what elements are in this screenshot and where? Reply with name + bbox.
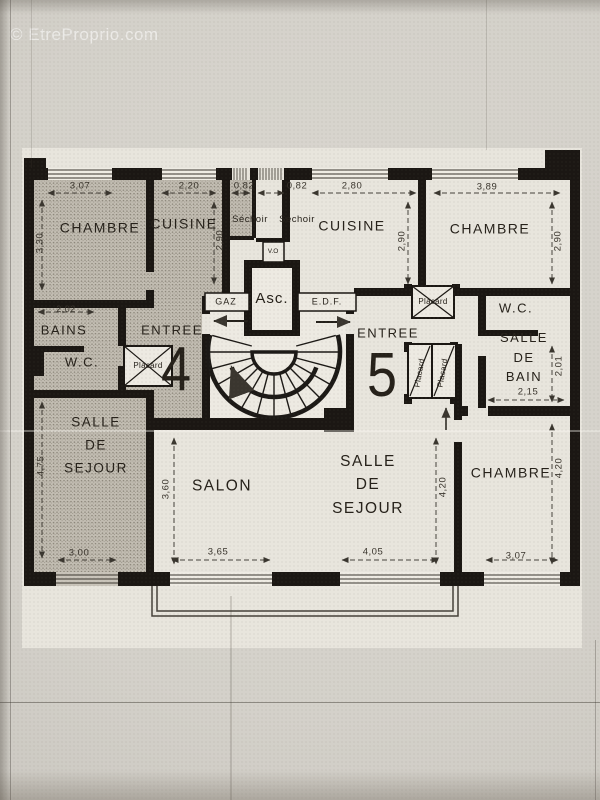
watermark: © EtreProprio.com <box>10 25 159 45</box>
room-label-cuisine-e: CUISINE <box>318 216 385 237</box>
dim-cuisine-e-h: 2,90 <box>397 231 408 252</box>
dim-top-6: 3,89 <box>477 182 498 193</box>
sheet-frame-left <box>10 0 11 800</box>
apartment-number-4: 4 <box>161 323 191 416</box>
dim-chambre-nw-h: 3,30 <box>35 233 46 254</box>
dim-chambre-ne-h: 2,90 <box>553 231 564 252</box>
dim-bains-w: 2,02 <box>56 304 76 314</box>
dim-top-5: 2,80 <box>342 181 363 192</box>
label-placard-ne: Placard <box>418 296 447 308</box>
photo-shading-bottom <box>0 770 600 800</box>
room-label-wc-w: W.C. <box>65 352 99 372</box>
sheet-frame-bottom <box>0 702 600 703</box>
dim-bottom-2: 3,65 <box>208 547 229 558</box>
dim-sejour-e-h: 4,20 <box>438 477 449 498</box>
fold-crease-top-left <box>31 0 32 168</box>
room-label-chambre-ne: CHAMBRE <box>450 219 531 240</box>
room-label-bains: BAINS <box>41 320 88 340</box>
room-label-chambre-nw: CHAMBRE <box>60 218 141 239</box>
room-label-chambre-se: CHAMBRE <box>471 463 552 484</box>
dim-bottom-4: 3,07 <box>506 551 527 562</box>
label-edf: E.D.F. <box>312 295 343 309</box>
dim-sejour-w-h: 4,75 <box>36 456 47 477</box>
photo-shading-top <box>0 0 600 14</box>
room-label-salle-de-bain: SALLE DE BAIN <box>500 328 548 387</box>
dim-bain-w: 2,15 <box>518 387 539 398</box>
room-label-sejour-w: SALLE DE SEJOUR <box>64 412 128 481</box>
dim-bottom-3: 4,05 <box>363 547 384 558</box>
dim-top-1: 3,07 <box>70 181 91 192</box>
fold-crease-horizontal <box>0 430 600 432</box>
dim-salon-h: 3,60 <box>161 479 172 500</box>
room-label-cuisine-w: CUISINE <box>150 214 217 235</box>
dim-top-2: 2,20 <box>179 181 200 192</box>
label-ascenseur: Asc. <box>255 288 288 311</box>
dim-bain-h: 2,01 <box>554 356 565 377</box>
dim-cuisine-w-h: 2,90 <box>215 230 226 251</box>
fold-crease-top-right <box>486 0 487 150</box>
label-vide-ordures: V.O <box>268 247 279 257</box>
dim-bottom-1: 3,00 <box>69 548 90 559</box>
apartment-number-5: 5 <box>367 329 397 422</box>
room-label-sechoir-2: Séchoir <box>279 213 315 227</box>
room-label-sechoir-1: Séchoir <box>232 213 268 227</box>
label-placard-w: Placard <box>133 360 162 372</box>
dim-chambre-se-h: 4,20 <box>554 458 565 479</box>
photo-shading-left <box>0 0 10 800</box>
label-gaz: GAZ <box>215 295 237 309</box>
room-label-sejour-e: SALLE DE SEJOUR <box>332 450 404 520</box>
dim-top-4: 0,82 <box>287 181 308 192</box>
room-label-wc-ne: W.C. <box>499 298 533 318</box>
dim-top-3: 0,82 <box>234 181 255 192</box>
room-label-salon: SALON <box>192 474 252 497</box>
floor-plan-drawing <box>0 0 600 800</box>
floor-plan-photo: CHAMBRE CUISINE Séchoir Séchoir V.O Asc.… <box>0 0 600 800</box>
